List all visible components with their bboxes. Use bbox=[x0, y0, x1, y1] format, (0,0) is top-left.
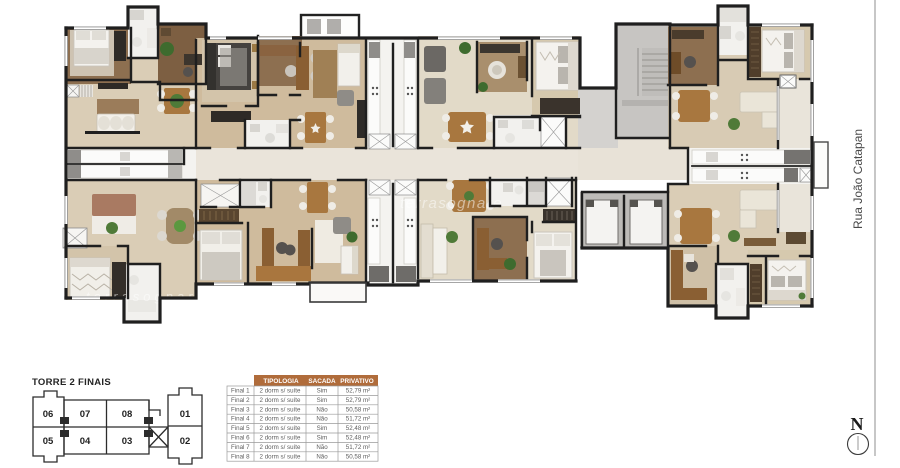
svg-text:Não: Não bbox=[316, 416, 328, 423]
svg-text:08: 08 bbox=[122, 409, 133, 420]
svg-text:Final 8: Final 8 bbox=[231, 453, 250, 460]
svg-text:Final 5: Final 5 bbox=[231, 425, 250, 432]
svg-text:01: 01 bbox=[180, 409, 191, 420]
svg-text:51,72 m²: 51,72 m² bbox=[346, 444, 370, 451]
svg-text:2 dorm s/ suíte: 2 dorm s/ suíte bbox=[260, 388, 301, 395]
svg-text:02: 02 bbox=[180, 436, 191, 447]
svg-text:Final 3: Final 3 bbox=[231, 406, 250, 413]
svg-text:2 dorm s/ suíte: 2 dorm s/ suíte bbox=[260, 397, 301, 404]
svg-text:2 dorm s/ suíte: 2 dorm s/ suíte bbox=[260, 435, 301, 442]
svg-text:Não: Não bbox=[316, 444, 328, 451]
svg-text:2 dorm s/ suíte: 2 dorm s/ suíte bbox=[260, 444, 301, 451]
svg-text:04: 04 bbox=[80, 436, 91, 447]
svg-text:50,58 m²: 50,58 m² bbox=[346, 406, 370, 413]
svg-text:terrasognare: terrasognare bbox=[400, 195, 503, 212]
svg-text:Final 4: Final 4 bbox=[231, 416, 250, 423]
svg-text:Final 7: Final 7 bbox=[231, 444, 250, 451]
svg-text:52,48 m²: 52,48 m² bbox=[346, 425, 370, 432]
svg-text:05: 05 bbox=[43, 436, 54, 447]
svg-text:Final 6: Final 6 bbox=[231, 435, 250, 442]
svg-text:52,79 m²: 52,79 m² bbox=[346, 388, 370, 395]
svg-text:Final 2: Final 2 bbox=[231, 397, 250, 404]
svg-text:Não: Não bbox=[316, 406, 328, 413]
svg-text:N: N bbox=[851, 414, 864, 434]
svg-text:50,58 m²: 50,58 m² bbox=[346, 453, 370, 460]
svg-text:52,79 m²: 52,79 m² bbox=[346, 397, 370, 404]
svg-text:TORRE 2 FINAIS: TORRE 2 FINAIS bbox=[32, 377, 111, 388]
svg-text:Sim: Sim bbox=[317, 397, 328, 404]
svg-text:51,72 m²: 51,72 m² bbox=[346, 416, 370, 423]
svg-text:52,48 m²: 52,48 m² bbox=[346, 435, 370, 442]
svg-text:Sim: Sim bbox=[317, 388, 328, 395]
svg-text:Sim: Sim bbox=[317, 435, 328, 442]
svg-text:2 dorm s/ suíte: 2 dorm s/ suíte bbox=[260, 406, 301, 413]
svg-text:2 dorm s/ suíte: 2 dorm s/ suíte bbox=[260, 416, 301, 423]
svg-text:06: 06 bbox=[43, 409, 54, 420]
svg-text:TIPOLOGIA: TIPOLOGIA bbox=[263, 378, 299, 385]
svg-text:2 dorm s/ suíte: 2 dorm s/ suíte bbox=[260, 425, 301, 432]
svg-text:SACADA: SACADA bbox=[308, 378, 336, 385]
svg-text:Não: Não bbox=[316, 453, 328, 460]
svg-text:2 dorm s/ suíte: 2 dorm s/ suíte bbox=[260, 453, 301, 460]
svg-text:Rua João Catapan: Rua João Catapan bbox=[851, 129, 865, 229]
svg-text:07: 07 bbox=[80, 409, 91, 420]
svg-text:03: 03 bbox=[122, 436, 133, 447]
svg-text:PRIVATIVO: PRIVATIVO bbox=[340, 378, 374, 385]
svg-text:Final 1: Final 1 bbox=[231, 388, 250, 395]
svg-text:Sim: Sim bbox=[317, 425, 328, 432]
